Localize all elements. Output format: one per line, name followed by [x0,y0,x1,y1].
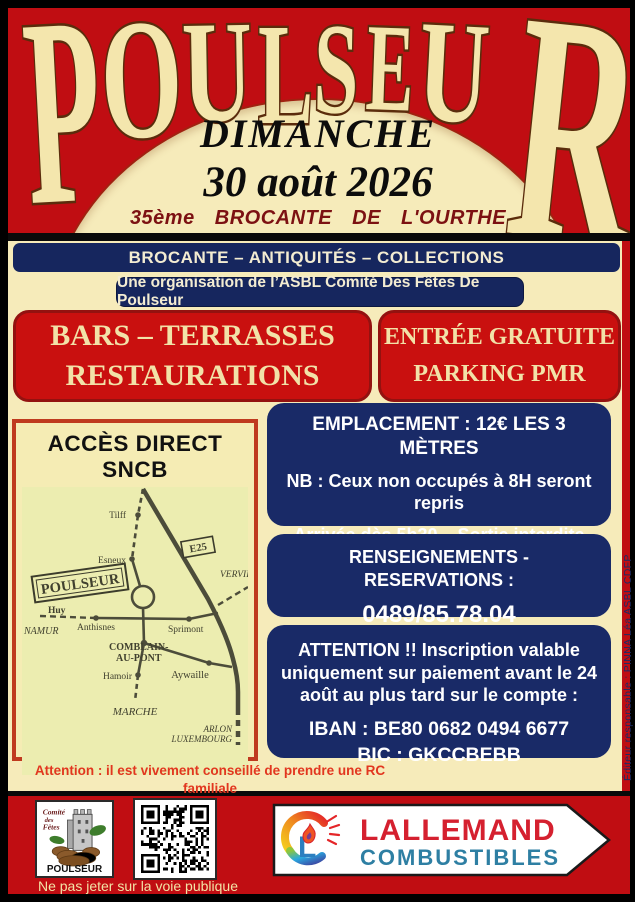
comite-logo: Comité des Fêtes POULSEUR [35,800,114,878]
bars-line1: BARS – TERRASSES [50,319,335,353]
svg-text:Comité: Comité [43,807,66,816]
box-attention: ATTENTION !! Inscription valable uniquem… [267,625,611,758]
event-date: 30 août 2026 [8,158,628,207]
ne-pas-jeter-text: Ne pas jeter sur la voie publique [26,878,250,894]
bars-line2: RESTAURATIONS [66,359,320,393]
renseignements-title: RENSEIGNEMENTS - RESERVATIONS : [279,546,599,591]
map-poulseur-circle [132,586,154,608]
header: POULSEUR DIMANCHE 30 août 2026 35ème BRO… [8,8,630,233]
banner-brocante: BROCANTE – ANTIQUITÉS – COLLECTIONS [13,243,620,272]
svg-text:Hamoir: Hamoir [103,672,133,682]
footer: Comité des Fêtes POULSEUR [8,796,630,894]
emplacement-line1: EMPLACEMENT : 12€ LES 3 MÈTRES [279,413,599,461]
svg-text:ARLON: ARLON [202,724,233,734]
editor-note: Éditeur responsable : PINNA Léa ASBL CDF… [622,471,634,781]
box-entree-gratuite: ENTRÉE GRATUITE PARKING PMR [378,310,621,402]
svg-text:Fêtes: Fêtes [43,823,60,832]
svg-text:Aywaille: Aywaille [171,670,209,681]
entree-line2: PARKING PMR [413,361,585,388]
box-renseignements: RENSEIGNEMENTS - RESERVATIONS : 0489/85.… [267,534,611,617]
svg-text:MARCHE: MARCHE [112,706,158,718]
svg-text:AU-PONT: AU-PONT [116,653,162,664]
svg-text:Tilff: Tilff [109,510,127,521]
access-map: POULSEUR E25 Tilff Esneux VERVIERS Huy N… [22,487,248,775]
poster-inner: POULSEUR DIMANCHE 30 août 2026 35ème BRO… [8,8,630,894]
edition-line: 35ème BROCANTE DE L'OURTHE [8,207,628,230]
svg-text:COMBLAIN-: COMBLAIN- [109,642,168,653]
svg-text:Anthisnes: Anthisnes [77,623,115,633]
svg-text:Esneux: Esneux [98,556,126,566]
emplacement-line2: NB : Ceux non occupés à 8H seront repris [279,470,599,515]
warning-line1: Attention : il est vivement conseillé de… [8,762,412,797]
svg-text:NAMUR: NAMUR [23,626,58,637]
iban: IBAN : BE80 0682 0494 6677 [279,717,599,741]
banner-organisation: Une organisation de l’ASBL Comité Des Fê… [116,277,524,307]
entree-line1: ENTRÉE GRATUITE [384,324,615,351]
box-bars-terrasses: BARS – TERRASSES RESTAURATIONS [13,310,372,402]
svg-text:LALLEMAND: LALLEMAND [360,814,556,847]
svg-text:Huy: Huy [48,606,66,616]
svg-text:VERVIERS: VERVIERS [220,570,248,580]
svg-text:COMBUSTIBLES: COMBUSTIBLES [360,845,560,870]
qr-code [133,798,217,880]
box-emplacement: EMPLACEMENT : 12€ LES 3 MÈTRES NB : Ceux… [267,403,611,526]
divider-top [8,233,630,241]
map-box: ACCÈS DIRECT SNCB [12,419,258,761]
svg-text:LUXEMBOURG: LUXEMBOURG [171,734,233,744]
lallemand-logo: L LALLEMAND COMBUSTIBLES [272,803,612,877]
body: BROCANTE – ANTIQUITÉS – COLLECTIONS Une … [8,241,622,791]
map-title: ACCÈS DIRECT SNCB [16,431,254,483]
event-day: DIMANCHE [8,110,628,157]
comite-castle-icon: Comité des Fêtes POULSEUR [37,802,112,876]
poster: POULSEUR DIMANCHE 30 août 2026 35ème BRO… [0,0,635,902]
svg-text:POULSEUR: POULSEUR [47,864,102,875]
svg-text:Sprimont: Sprimont [168,625,204,635]
attention-text: ATTENTION !! Inscription valable uniquem… [279,639,599,707]
